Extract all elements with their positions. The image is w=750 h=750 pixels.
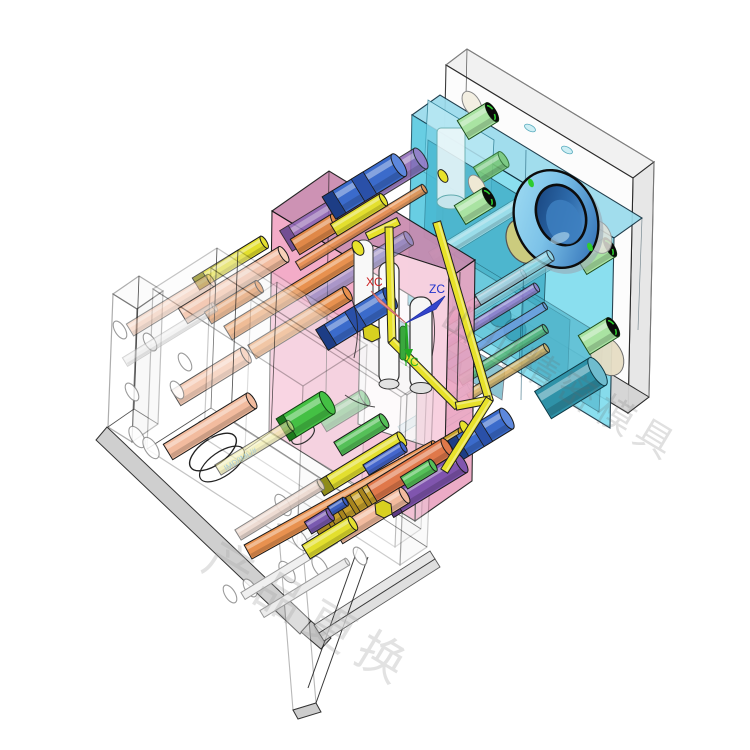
svg-text:YC: YC — [402, 355, 419, 369]
svg-text:XC: XC — [366, 275, 383, 289]
svg-text:ZC: ZC — [429, 282, 445, 296]
